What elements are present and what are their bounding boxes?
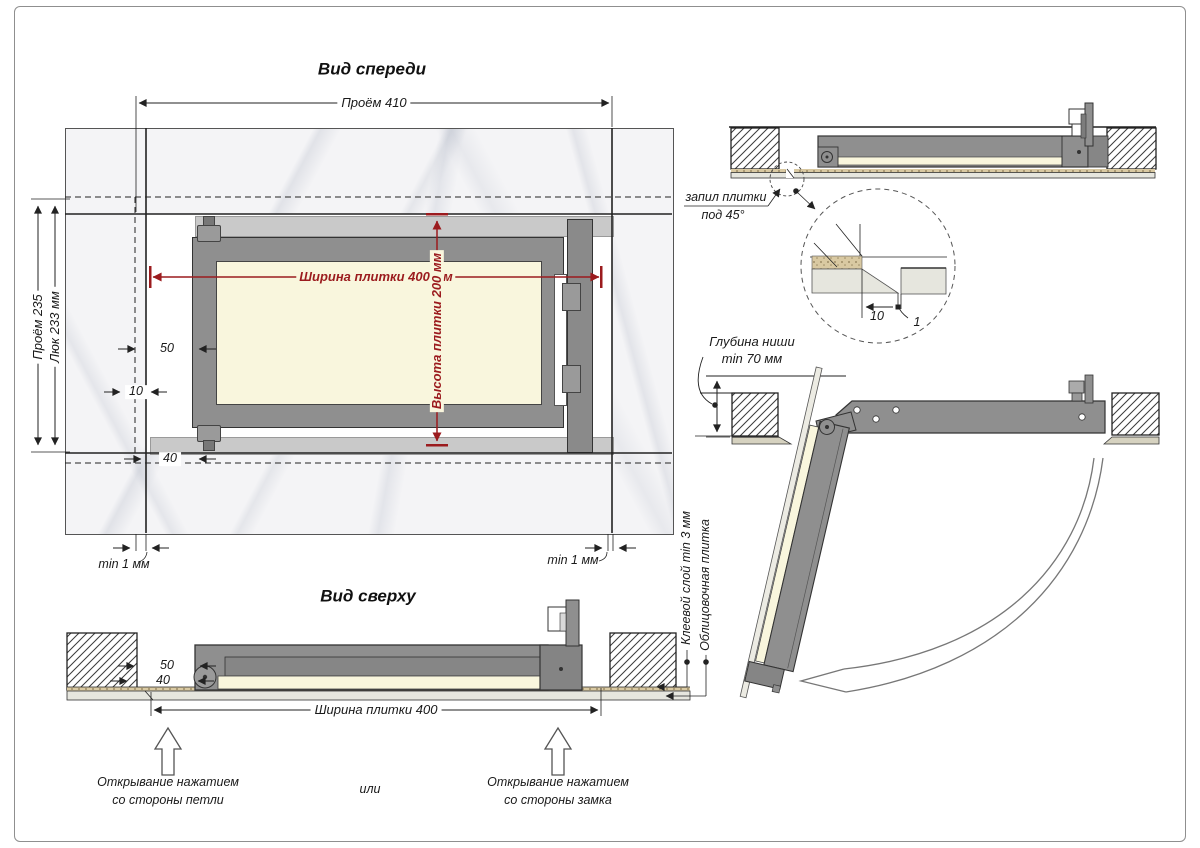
latch-block-upper — [562, 283, 581, 311]
label-tile-cut-line1: запил плитки — [686, 191, 767, 205]
top-view-title: Вид сверху — [320, 588, 416, 607]
label-open-hinge-line2: со стороны петли — [112, 794, 223, 808]
gap-min1-left: min 1 мм — [98, 558, 149, 572]
dim-opening-width: Проём 410 — [337, 96, 410, 110]
dim-tile-height-red: Высота плитки 200 мм — [430, 250, 444, 412]
detail-dim-1: 1 — [914, 316, 921, 330]
label-open-lock-line1: Открывание нажатием — [487, 776, 629, 790]
dim-offset-50: 50 — [160, 342, 174, 356]
label-niche-depth-line1: Глубина ниши — [709, 335, 794, 349]
label-tile-cut-line2: под 45° — [701, 209, 744, 223]
dim-offset-40: 40 — [159, 452, 181, 466]
label-open-hinge-line1: Открывание нажатием — [97, 776, 239, 790]
latch-block-lower — [562, 365, 581, 393]
front-frame-flange-top — [195, 216, 614, 237]
hinge-top — [197, 225, 221, 242]
label-niche-depth-line2: min 70 мм — [722, 352, 782, 366]
label-open-lock-line2: со стороны замка — [504, 794, 612, 808]
hinge-bottom-pin — [203, 440, 215, 451]
label-adhesive-layer: Клеевой слой min 3 мм — [680, 507, 694, 649]
front-view-title: Вид спереди — [318, 61, 426, 80]
detail-dim-10: 10 — [870, 310, 884, 324]
dim-opening-height: Проём 235 — [31, 290, 45, 363]
top-dim-tile-width: Ширина плитки 400 — [311, 703, 442, 717]
front-frame-right-bar — [567, 219, 593, 453]
top-dim-offset-40: 40 — [156, 674, 170, 688]
label-or: или — [360, 783, 381, 797]
dim-hatch-height: Люк 233 мм — [48, 287, 62, 367]
gap-min1-right: min 1 мм — [547, 554, 598, 568]
top-dim-offset-50: 50 — [160, 659, 174, 673]
technical-drawing-page: Вид спереди Проём 410 Проём 235 Люк 233 … — [0, 0, 1200, 848]
label-facing-tile: Облицовочная плитка — [699, 515, 713, 655]
dim-offset-10: 10 — [125, 385, 147, 399]
